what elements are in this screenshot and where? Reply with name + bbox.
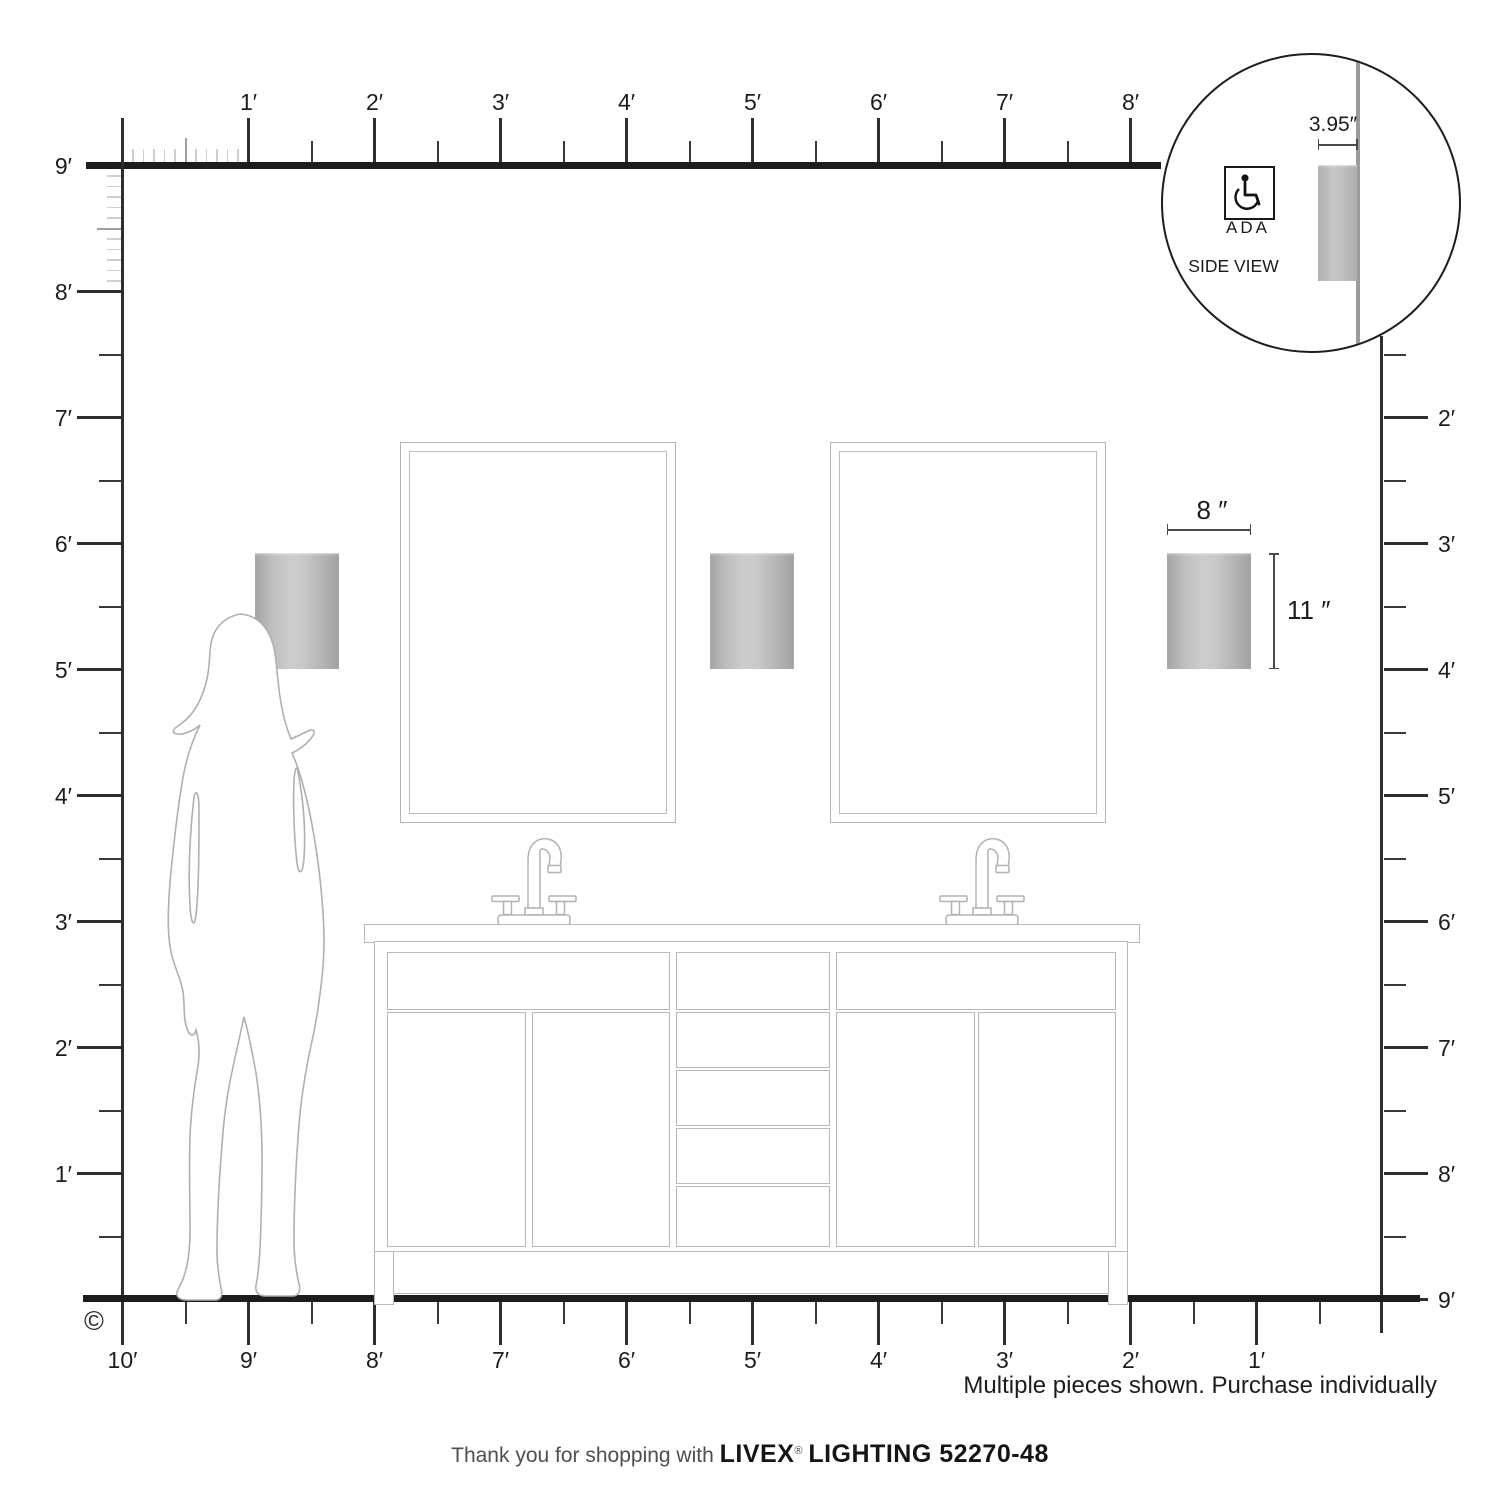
ruler-bottom-half-tick (437, 1302, 439, 1324)
ruler-top-half-tick (563, 141, 565, 162)
ruler-bottom-foot-tick (1129, 1302, 1132, 1345)
wheelchair-icon (1232, 173, 1268, 213)
ruler-top-inch-tick (164, 149, 166, 162)
ruler-left-inch-tick (107, 249, 121, 251)
ruler-left-inch-tick (107, 186, 121, 188)
ruler-top-inch-tick (195, 149, 197, 162)
ruler-right-line (1380, 336, 1383, 1333)
ruler-right-label: 6′ (1438, 908, 1490, 936)
ruler-bottom-half-tick (185, 1302, 187, 1324)
ruler-top-foot-tick (877, 118, 880, 162)
width-dimension-line (1167, 529, 1251, 531)
ruler-right-foot-tick (1384, 794, 1428, 797)
vanity-door-3 (836, 1012, 975, 1247)
ruler-left-label: 3′ (28, 908, 72, 936)
ruler-right-foot-tick (1384, 1172, 1428, 1175)
footer-brand: LIVEX (720, 1440, 795, 1468)
ruler-right-half-tick (1384, 1110, 1406, 1112)
footer-product: LIGHTING 52270-48 (808, 1440, 1049, 1468)
ruler-top-foot-tick (751, 118, 754, 162)
ruler-right-label: 9′ (1438, 1286, 1490, 1314)
ruler-left-inch-tick (107, 175, 121, 177)
ruler-right-half-tick (1384, 1236, 1406, 1238)
mirror-right-glass (839, 451, 1097, 814)
ruler-bottom-foot-tick (1003, 1302, 1006, 1345)
ruler-bottom-foot-tick (625, 1302, 628, 1345)
depth-dimension-line (1318, 144, 1358, 146)
ruler-top-inch6-tick (185, 138, 187, 162)
vanity-drawer-2 (676, 1070, 830, 1126)
vanity-door-1 (387, 1012, 526, 1247)
human-silhouette (158, 612, 358, 1302)
ruler-right-half-tick (1384, 606, 1406, 608)
ruler-left-inch-tick (107, 259, 121, 261)
ruler-top-label: 1′ (219, 88, 279, 116)
ruler-bottom-half-tick (311, 1302, 313, 1324)
ruler-right-half-tick (1384, 858, 1406, 860)
vanity-toe-kick (392, 1251, 1110, 1294)
ruler-top-label: 7′ (975, 88, 1035, 116)
ruler-bottom-label: 5′ (723, 1346, 783, 1374)
ruler-bottom-label: 6′ (597, 1346, 657, 1374)
ruler-left-label: 9′ (28, 152, 72, 180)
ruler-bottom-foot-tick (751, 1302, 754, 1345)
ruler-left-foot-tick (77, 542, 121, 545)
ruler-bottom-foot-tick (1255, 1302, 1258, 1345)
ruler-left-foot-tick (77, 668, 121, 671)
ruler-top-half-tick (1067, 141, 1069, 162)
ruler-right-label: 2′ (1438, 404, 1490, 432)
ruler-bottom-half-tick (563, 1302, 565, 1324)
ruler-bottom-foot-tick (373, 1302, 376, 1345)
ruler-bottom-half-tick (1067, 1302, 1069, 1324)
ruler-bottom-foot-tick (499, 1302, 502, 1345)
ruler-right-foot-tick (1384, 668, 1428, 671)
ruler-bottom-label: 8′ (345, 1346, 405, 1374)
ruler-left-label: 5′ (28, 656, 72, 684)
ruler-bottom-label: 7′ (471, 1346, 531, 1374)
ruler-top-inch-tick (206, 149, 208, 162)
footer-thanks: Thank you for shopping with (451, 1444, 714, 1467)
depth-dimension-label: 3.95″ (1293, 113, 1373, 137)
ruler-top-foot-tick (1003, 118, 1006, 162)
ruler-top-label: 8′ (1101, 88, 1161, 116)
ruler-bottom-label: 10′ (93, 1346, 153, 1374)
mirror-left (400, 442, 676, 823)
mirror-left-glass (409, 451, 667, 814)
ruler-top-foot-tick (499, 118, 502, 162)
ruler-bottom-half-tick (815, 1302, 817, 1324)
vanity-top-panel-right (836, 952, 1116, 1010)
copyright-symbol: © (84, 1306, 104, 1337)
vanity-top-drawer-middle (676, 952, 830, 1010)
ruler-left-inch-tick (107, 270, 121, 272)
ruler-left-inch-tick (107, 207, 121, 209)
vanity-drawer-1 (676, 1012, 830, 1068)
ruler-right-label: 7′ (1438, 1034, 1490, 1062)
ruler-left-half-tick (99, 354, 121, 356)
dimension-diagram: 8 ″ 11 ″ 3.95″ ADA SIDE VIEW © Multiple … (0, 0, 1500, 1500)
ruler-top-half-tick (311, 141, 313, 162)
ruler-left-half-tick (99, 984, 121, 986)
mirror-right (830, 442, 1106, 823)
ada-label: ADA (1211, 218, 1285, 238)
ruler-top-label: 6′ (849, 88, 909, 116)
width-dimension-tick-left (1167, 524, 1169, 535)
ruler-left-label: 1′ (28, 1160, 72, 1188)
ruler-left-foot-tick (77, 290, 121, 293)
footer-text: Thank you for shopping with LIVEX® LIGHT… (250, 1440, 1250, 1469)
ruler-left-foot-tick (77, 1172, 121, 1175)
height-dimension-line (1273, 553, 1275, 669)
ruler-top-label: 4′ (597, 88, 657, 116)
ruler-top-foot-tick (625, 118, 628, 162)
ruler-left-foot-tick (77, 1046, 121, 1049)
faucet-right (922, 834, 1042, 929)
ruler-right-half-tick (1384, 354, 1406, 356)
ruler-top-label: 3′ (471, 88, 531, 116)
ruler-bottom-label: 9′ (219, 1346, 279, 1374)
ruler-top-foot-tick (247, 118, 250, 162)
ruler-right-foot-tick (1384, 416, 1428, 419)
ruler-bottom-foot-tick (247, 1302, 250, 1345)
ruler-left-label: 8′ (28, 278, 72, 306)
ruler-bottom-label: 2′ (1101, 1346, 1161, 1374)
ruler-bottom-half-tick (689, 1302, 691, 1324)
ruler-left-half-tick (99, 1110, 121, 1112)
ada-badge (1224, 166, 1275, 220)
ruler-bottom-foot-tick (121, 1302, 124, 1345)
ruler-top-label: 2′ (345, 88, 405, 116)
ruler-left-half-tick (99, 732, 121, 734)
ruler-left-foot-tick (77, 416, 121, 419)
ruler-left-label: 4′ (28, 782, 72, 810)
ruler-top-inch-tick (143, 149, 145, 162)
ruler-right-half-tick (1384, 480, 1406, 482)
sconce-right (1167, 553, 1251, 669)
ruler-left-inch-tick (107, 196, 121, 198)
vanity-drawer-4 (676, 1186, 830, 1247)
ruler-left-half-tick (99, 858, 121, 860)
ruler-bottom-label: 1′ (1227, 1346, 1287, 1374)
height-dimension-tick-bottom (1269, 668, 1279, 670)
ruler-top-bar (86, 162, 1161, 169)
registered-mark: ® (794, 1445, 802, 1457)
ruler-left-inch-tick (107, 280, 121, 282)
width-dimension-label: 8 ″ (1172, 495, 1252, 526)
ruler-right-foot-tick (1384, 920, 1428, 923)
side-view-label: SIDE VIEW (1181, 256, 1286, 277)
vanity-door-4 (978, 1012, 1116, 1247)
ruler-left-half-tick (99, 480, 121, 482)
ruler-bottom-half-tick (941, 1302, 943, 1324)
ruler-bottom-label: 3′ (975, 1346, 1035, 1374)
ruler-top-label: 5′ (723, 88, 783, 116)
ruler-right-half-tick (1384, 732, 1406, 734)
ruler-top-foot-tick (373, 118, 376, 162)
ruler-bottom-label: 4′ (849, 1346, 909, 1374)
ruler-right-label: 3′ (1438, 530, 1490, 558)
ruler-bottom-half-tick (1193, 1302, 1195, 1324)
ruler-left-half-tick (99, 606, 121, 608)
ruler-left-label: 6′ (28, 530, 72, 558)
ruler-left-inch-tick (107, 217, 121, 219)
ruler-left-foot-tick (77, 794, 121, 797)
height-dimension-label: 11 ″ (1287, 595, 1367, 626)
ruler-right-label: 5′ (1438, 782, 1490, 810)
vanity-leg-left (374, 1251, 394, 1305)
ruler-bottom-foot-tick (877, 1302, 880, 1345)
ruler-right-foot-tick (1384, 1046, 1428, 1049)
ruler-top-inch-tick (132, 149, 134, 162)
ruler-top-inch-tick (216, 149, 218, 162)
ruler-top-foot-tick (1129, 118, 1132, 162)
vanity-drawer-3 (676, 1128, 830, 1184)
ruler-right-label: 4′ (1438, 656, 1490, 684)
ruler-top-inch-tick (227, 149, 229, 162)
depth-dimension-tick-left (1318, 139, 1320, 150)
ruler-bottom-half-tick (1319, 1302, 1321, 1324)
ruler-top-inch-tick (174, 149, 176, 162)
ruler-left-inch-tick (107, 238, 121, 240)
ruler-top-half-tick (941, 141, 943, 162)
vanity-top-panel-left (387, 952, 670, 1010)
ruler-top-inch-tick (237, 149, 239, 162)
sconce-middle (710, 553, 794, 669)
ruler-right-half-tick (1384, 984, 1406, 986)
ruler-left-label: 2′ (28, 1034, 72, 1062)
side-view-inset: 3.95″ ADA SIDE VIEW (1161, 53, 1461, 353)
ruler-left-label: 7′ (28, 404, 72, 432)
vanity-door-2 (532, 1012, 670, 1247)
ruler-left-inch6-tick (97, 228, 121, 230)
ruler-right-foot-tick (1384, 542, 1428, 545)
height-dimension-tick-top (1269, 553, 1279, 555)
sconce-side-view (1318, 165, 1357, 281)
faucet-left (474, 834, 594, 929)
ruler-top-inch-tick (153, 149, 155, 162)
ruler-left-foot-tick (77, 920, 121, 923)
ruler-top-half-tick (437, 141, 439, 162)
ruler-top-half-tick (815, 141, 817, 162)
vanity-leg-right (1108, 1251, 1128, 1305)
purchase-note: Multiple pieces shown. Purchase individu… (880, 1372, 1437, 1400)
ruler-top-half-tick (689, 141, 691, 162)
ruler-right-label: 8′ (1438, 1160, 1490, 1188)
ruler-left-line (121, 118, 124, 1302)
depth-dimension-tick-right (1356, 139, 1358, 150)
ruler-left-half-tick (99, 1236, 121, 1238)
